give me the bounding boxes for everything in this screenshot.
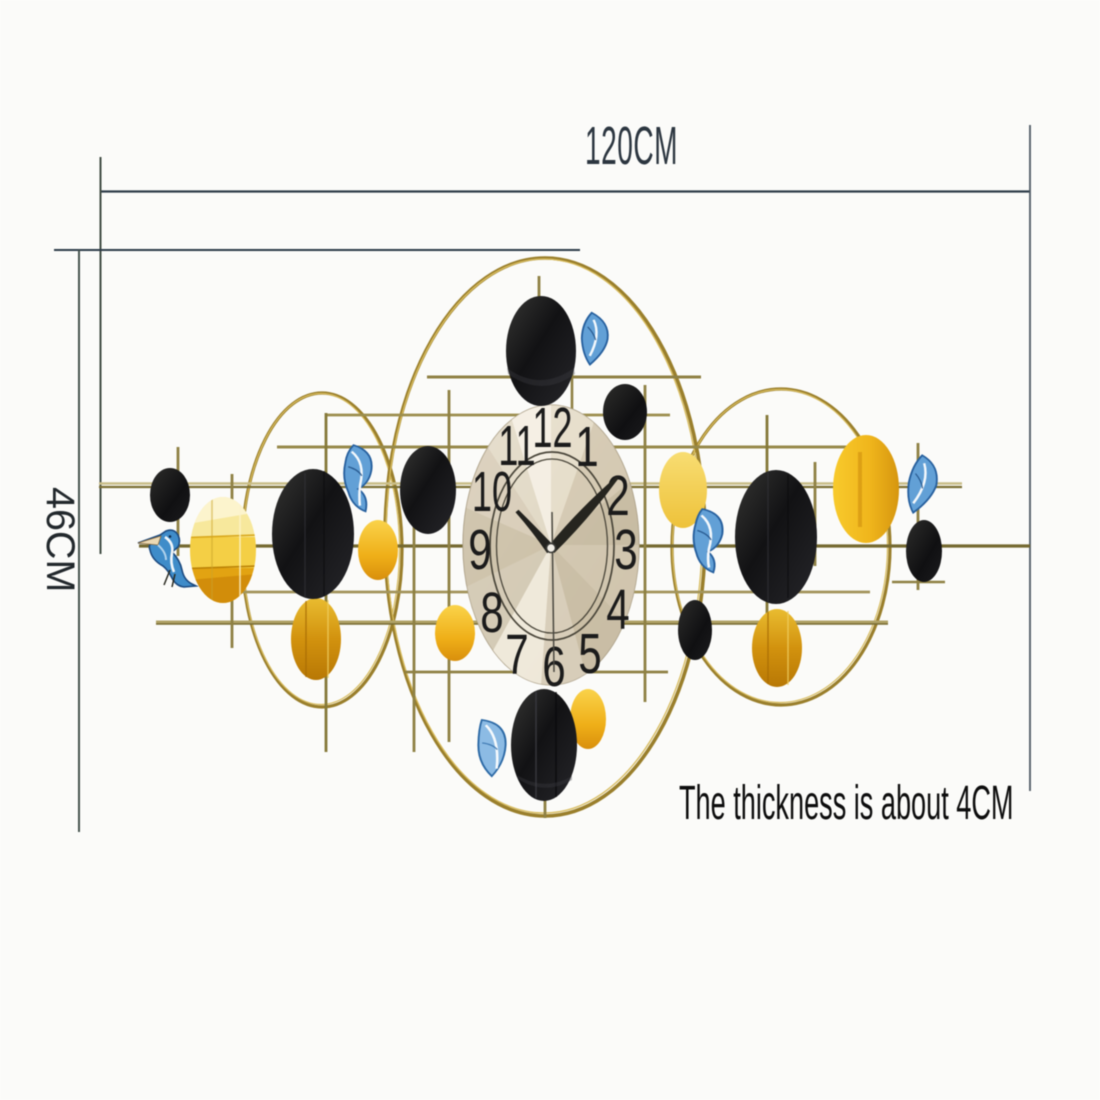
svg-text:7: 7 [505, 623, 528, 687]
svg-text:12: 12 [533, 397, 573, 460]
svg-text:120CM: 120CM [585, 116, 678, 176]
svg-text:5: 5 [578, 622, 601, 686]
svg-text:3: 3 [614, 518, 637, 582]
svg-text:The thickness is about 4CM: The thickness is about 4CM [679, 777, 1014, 830]
svg-text:8: 8 [480, 581, 503, 645]
svg-text:4: 4 [606, 578, 629, 642]
svg-text:1: 1 [575, 415, 598, 479]
svg-text:46CM: 46CM [38, 487, 82, 592]
svg-text:11: 11 [498, 415, 535, 478]
svg-text:9: 9 [468, 518, 491, 582]
